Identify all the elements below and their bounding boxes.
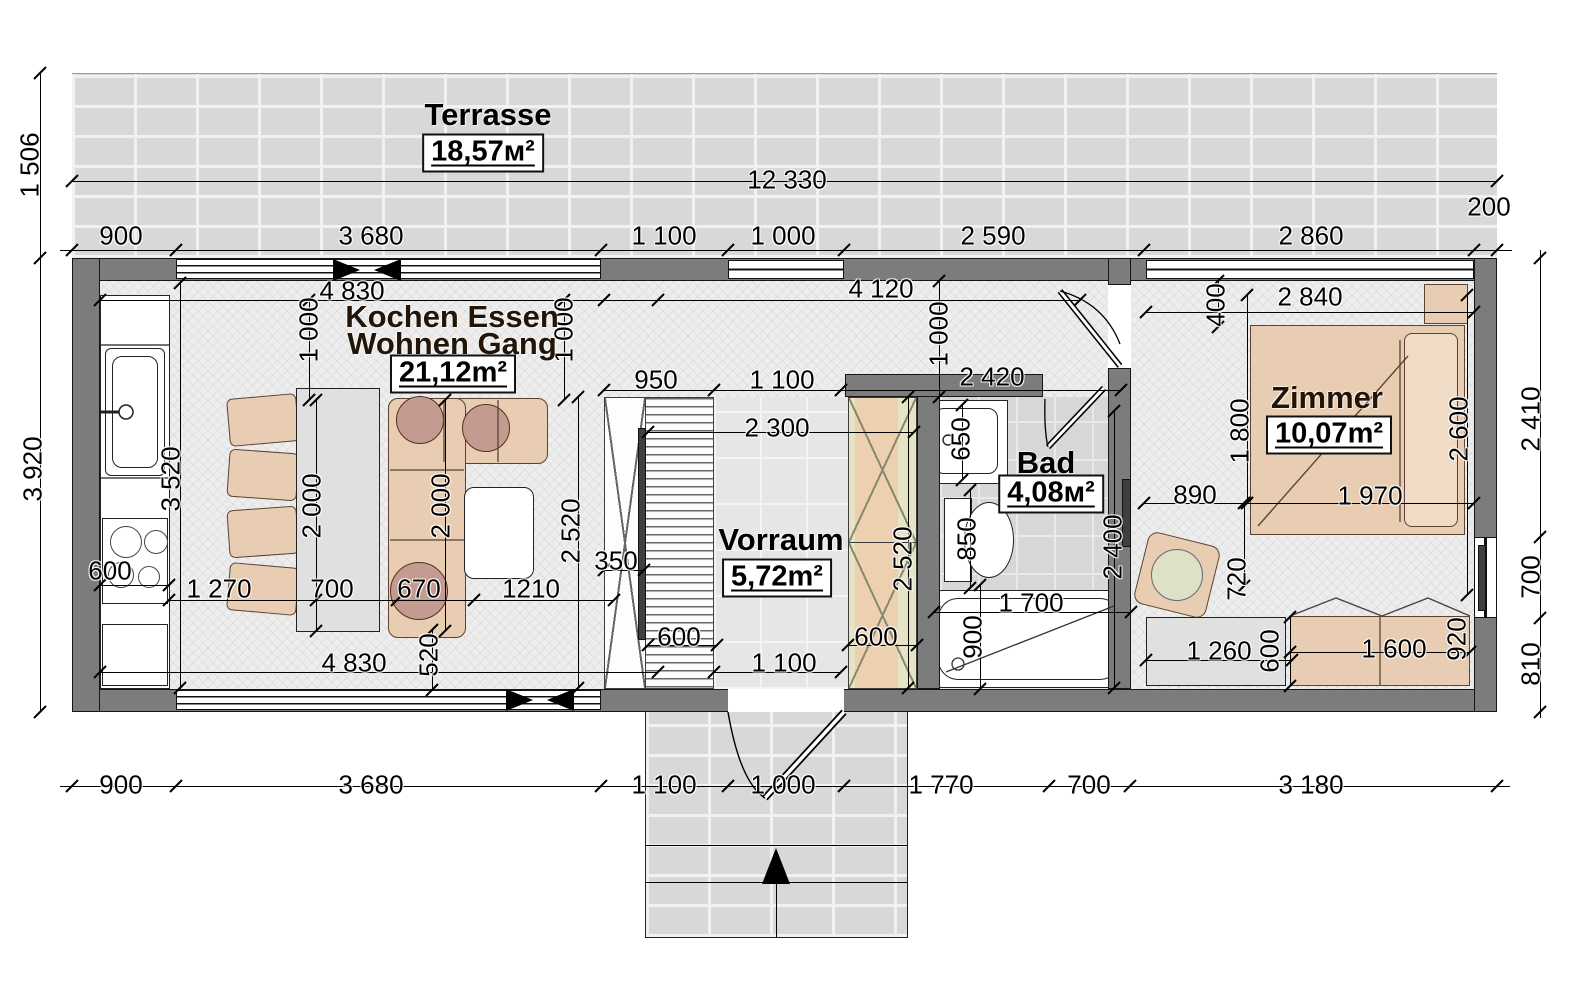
dimension-label: 2 300	[744, 413, 809, 444]
dimension-label: 12 330	[747, 165, 827, 196]
dimension-label: 1 000	[750, 221, 815, 252]
dimension-label: 4 830	[321, 648, 386, 679]
dimension-label: 200	[1467, 192, 1510, 223]
dimension-label: 2 410	[1516, 386, 1547, 451]
dimension-label: 600	[1255, 629, 1286, 672]
room-label-zimmer: Zimmer	[1271, 380, 1383, 416]
room-area-zimmer: 10,07m²	[1266, 416, 1392, 455]
dimension-label: 1 000	[294, 297, 325, 362]
sliding-window-bottom	[176, 690, 601, 710]
dimension-label: 920	[1442, 617, 1473, 660]
dimension-label: 3 680	[338, 770, 403, 801]
dimension-label: 2 840	[1277, 282, 1342, 313]
dimension-label: 950	[634, 365, 677, 396]
burner	[110, 526, 142, 558]
dimension-label: 2 000	[426, 473, 457, 538]
wall-left	[72, 258, 100, 712]
room-label-vorraum: Vorraum	[718, 522, 843, 558]
dimension-label: 1 800	[1225, 398, 1256, 463]
dining-chair	[226, 506, 299, 559]
dimension-label: 600	[657, 622, 700, 653]
room-area-terrasse: 18,57м²	[422, 134, 544, 173]
dimension-label: 670	[397, 574, 440, 605]
dimension-label: 3 920	[18, 436, 49, 501]
burner	[144, 530, 168, 554]
dimension-label: 600	[88, 556, 131, 587]
dimension-label: 700	[1067, 770, 1110, 801]
slide-arrow-right-icon	[506, 689, 533, 711]
storage-closet-upper	[848, 397, 917, 543]
dimension-label: 4 120	[848, 274, 913, 305]
armchair-cushion	[1151, 549, 1203, 601]
dimension-label: 520	[414, 633, 445, 676]
window-vorraum-top	[728, 260, 844, 279]
tv-panel	[638, 428, 646, 640]
dimension-label: 890	[1173, 480, 1216, 511]
kitchen-sink-basin	[112, 356, 158, 468]
dimension-label: 650	[946, 417, 977, 460]
dimension-label: 1 100	[749, 365, 814, 396]
dimension-line	[604, 390, 1121, 391]
dimension-label: 1 600	[1361, 634, 1426, 665]
dimension-label: 1 270	[186, 574, 251, 605]
bedroom-door-opening	[1108, 285, 1131, 368]
dimension-label: 3 680	[338, 221, 403, 252]
dimension-label: 700	[1516, 555, 1547, 598]
dimension-label: 1 700	[998, 588, 1063, 619]
dimension-label: 900	[99, 221, 142, 252]
room-area-vorraum: 5,72m²	[722, 559, 832, 598]
dimension-label: 720	[1222, 557, 1253, 600]
dimension-label: 2 400	[1098, 514, 1129, 579]
window-bedroom-top	[1146, 260, 1474, 279]
room-area-wohnen: 21,12m²	[390, 355, 516, 394]
dimension-label: 1 100	[631, 770, 696, 801]
dimension-label: 900	[99, 770, 142, 801]
coffee-table	[464, 487, 534, 579]
dimension-label: 810	[1516, 642, 1547, 685]
dishwasher	[102, 624, 168, 686]
dimension-label: 400	[1201, 283, 1232, 326]
dimension-label: 3 180	[1278, 770, 1343, 801]
dimension-label: 1 100	[751, 648, 816, 679]
dimension-label: 2 520	[888, 526, 919, 591]
radiator	[1478, 545, 1486, 611]
dimension-label: 2 520	[556, 498, 587, 563]
floor-plan: Terrasse 18,57м² Kochen Essen Wohnen Gan…	[0, 0, 1575, 1008]
dimension-label: 2 420	[959, 362, 1024, 393]
dimension-label: 1 100	[631, 221, 696, 252]
dimension-label: 1 000	[750, 770, 815, 801]
swivel-chair	[462, 404, 510, 452]
wall-bath-bedroom-upper	[1108, 258, 1131, 285]
dimension-label: 1210	[502, 574, 560, 605]
entrance-direction-arrow-icon	[762, 848, 790, 884]
dimension-label: 850	[952, 517, 983, 560]
dimension-label: 1 770	[908, 770, 973, 801]
dimension-label: 1 506	[15, 132, 46, 197]
dimension-label: 600	[854, 622, 897, 653]
room-label-terrasse: Terrasse	[425, 97, 552, 133]
dimension-label: 700	[310, 574, 353, 605]
dimension-label: 3 520	[156, 446, 187, 511]
dimension-line	[776, 882, 777, 938]
dimension-label: 900	[958, 615, 989, 658]
entrance-door-opening	[728, 689, 844, 712]
dimension-line	[645, 845, 908, 846]
dimension-label: 1 970	[1337, 481, 1402, 512]
room-area-bad: 4,08м²	[998, 475, 1104, 514]
dimension-label: 2 590	[960, 221, 1025, 252]
nightstand	[1424, 284, 1468, 324]
dimension-label: 2 000	[297, 473, 328, 538]
dimension-label: 2 600	[1444, 396, 1475, 461]
dimension-label: 1 000	[924, 301, 955, 366]
dimension-line	[604, 300, 1080, 301]
dimension-label: 2 860	[1278, 221, 1343, 252]
dining-chair	[226, 449, 299, 502]
dining-chair	[226, 393, 300, 447]
slide-arrow-left-icon	[547, 689, 574, 711]
wall-right	[1474, 258, 1497, 712]
swivel-chair	[396, 396, 444, 444]
dimension-label: 1 260	[1186, 636, 1251, 667]
dimension-label: 350	[594, 546, 637, 577]
